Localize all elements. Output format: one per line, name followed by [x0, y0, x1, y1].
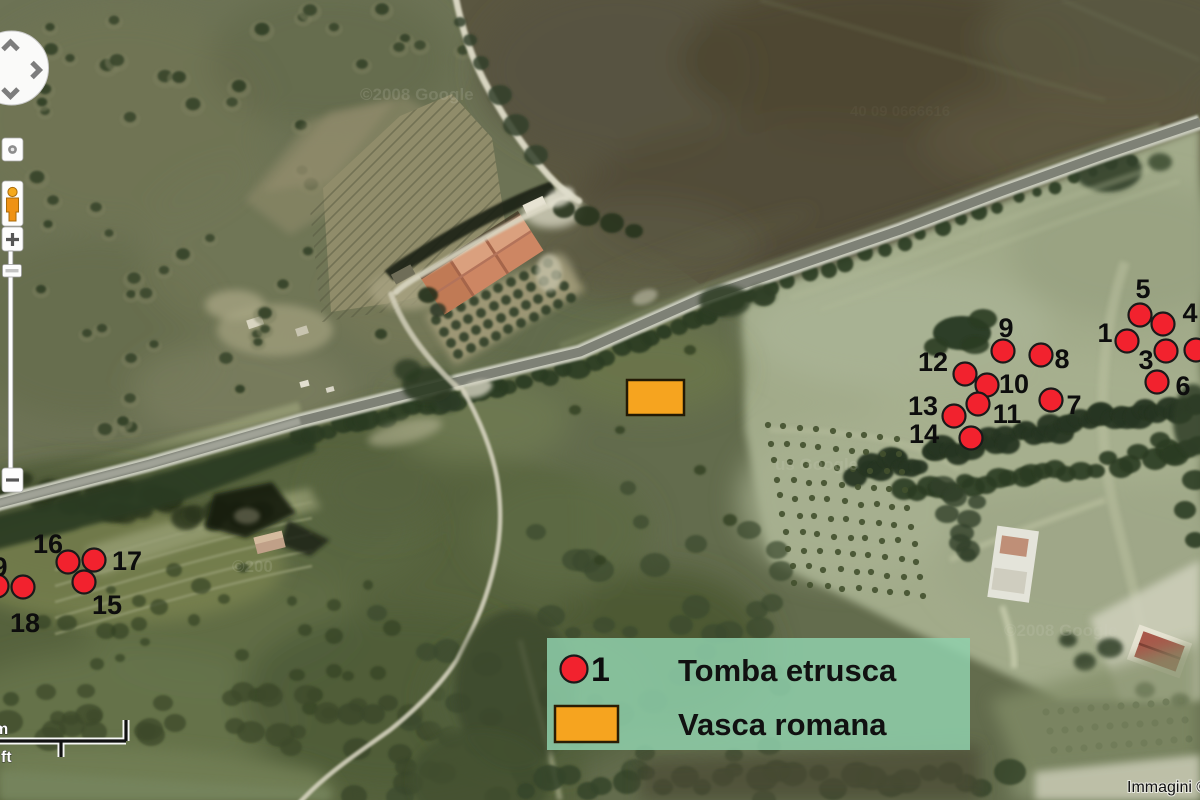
svg-text:18: 18	[10, 608, 40, 638]
svg-text:13: 13	[908, 391, 938, 421]
svg-text:16: 16	[33, 529, 63, 559]
svg-text:Immagini ©: Immagini ©	[1127, 779, 1200, 796]
svg-text:14: 14	[909, 419, 939, 449]
svg-text:10: 10	[999, 369, 1029, 399]
svg-text:8: 8	[1054, 344, 1069, 374]
svg-text:©2008 Google: ©2008 Google	[360, 85, 474, 104]
svg-text:6: 6	[1175, 371, 1190, 401]
svg-text:9: 9	[998, 313, 1013, 343]
svg-text:us Google: us Google	[775, 455, 858, 474]
svg-text:©2008 Google: ©2008 Google	[1004, 621, 1118, 640]
svg-text:ft: ft	[1, 749, 12, 766]
svg-text:11: 11	[993, 399, 1022, 429]
svg-text:1: 1	[1097, 318, 1112, 348]
svg-text:7: 7	[1066, 390, 1081, 420]
svg-text:©200: ©200	[232, 557, 273, 576]
svg-text:Tomba etrusca: Tomba etrusca	[678, 653, 897, 688]
svg-text:3: 3	[1138, 345, 1153, 375]
svg-text:1: 1	[591, 651, 610, 689]
svg-text:15: 15	[92, 590, 122, 620]
svg-text:5: 5	[1135, 274, 1150, 304]
svg-text:m: m	[0, 721, 8, 738]
svg-text:40 09 0666616: 40 09 0666616	[850, 103, 950, 120]
svg-text:17: 17	[112, 546, 142, 576]
svg-text:12: 12	[918, 347, 948, 377]
svg-text:Vasca romana: Vasca romana	[678, 707, 887, 742]
svg-text:4: 4	[1182, 298, 1197, 328]
svg-text:9: 9	[0, 552, 8, 582]
